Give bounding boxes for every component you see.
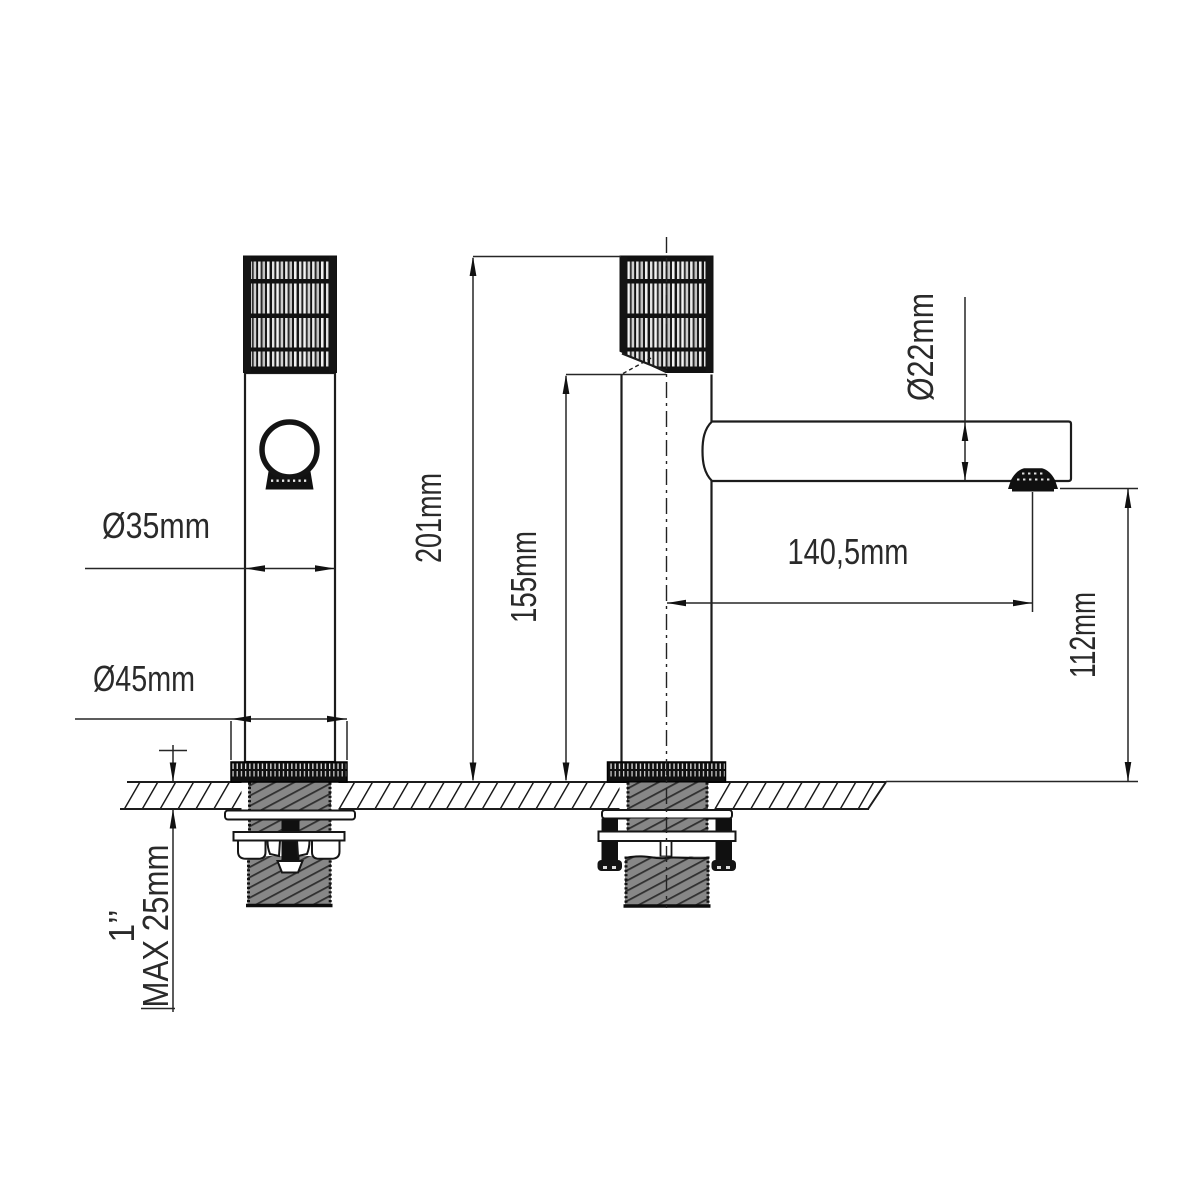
svg-text:201mm: 201mm bbox=[408, 473, 449, 563]
svg-text:Ø45mm: Ø45mm bbox=[93, 658, 195, 699]
svg-text:1’’: 1’’ bbox=[101, 910, 142, 943]
svg-text:112mm: 112mm bbox=[1062, 592, 1103, 678]
svg-text:155mm: 155mm bbox=[503, 531, 544, 623]
svg-text:Ø22mm: Ø22mm bbox=[900, 293, 941, 401]
svg-text:Ø35mm: Ø35mm bbox=[102, 505, 210, 546]
svg-text:140,5mm: 140,5mm bbox=[788, 531, 909, 572]
